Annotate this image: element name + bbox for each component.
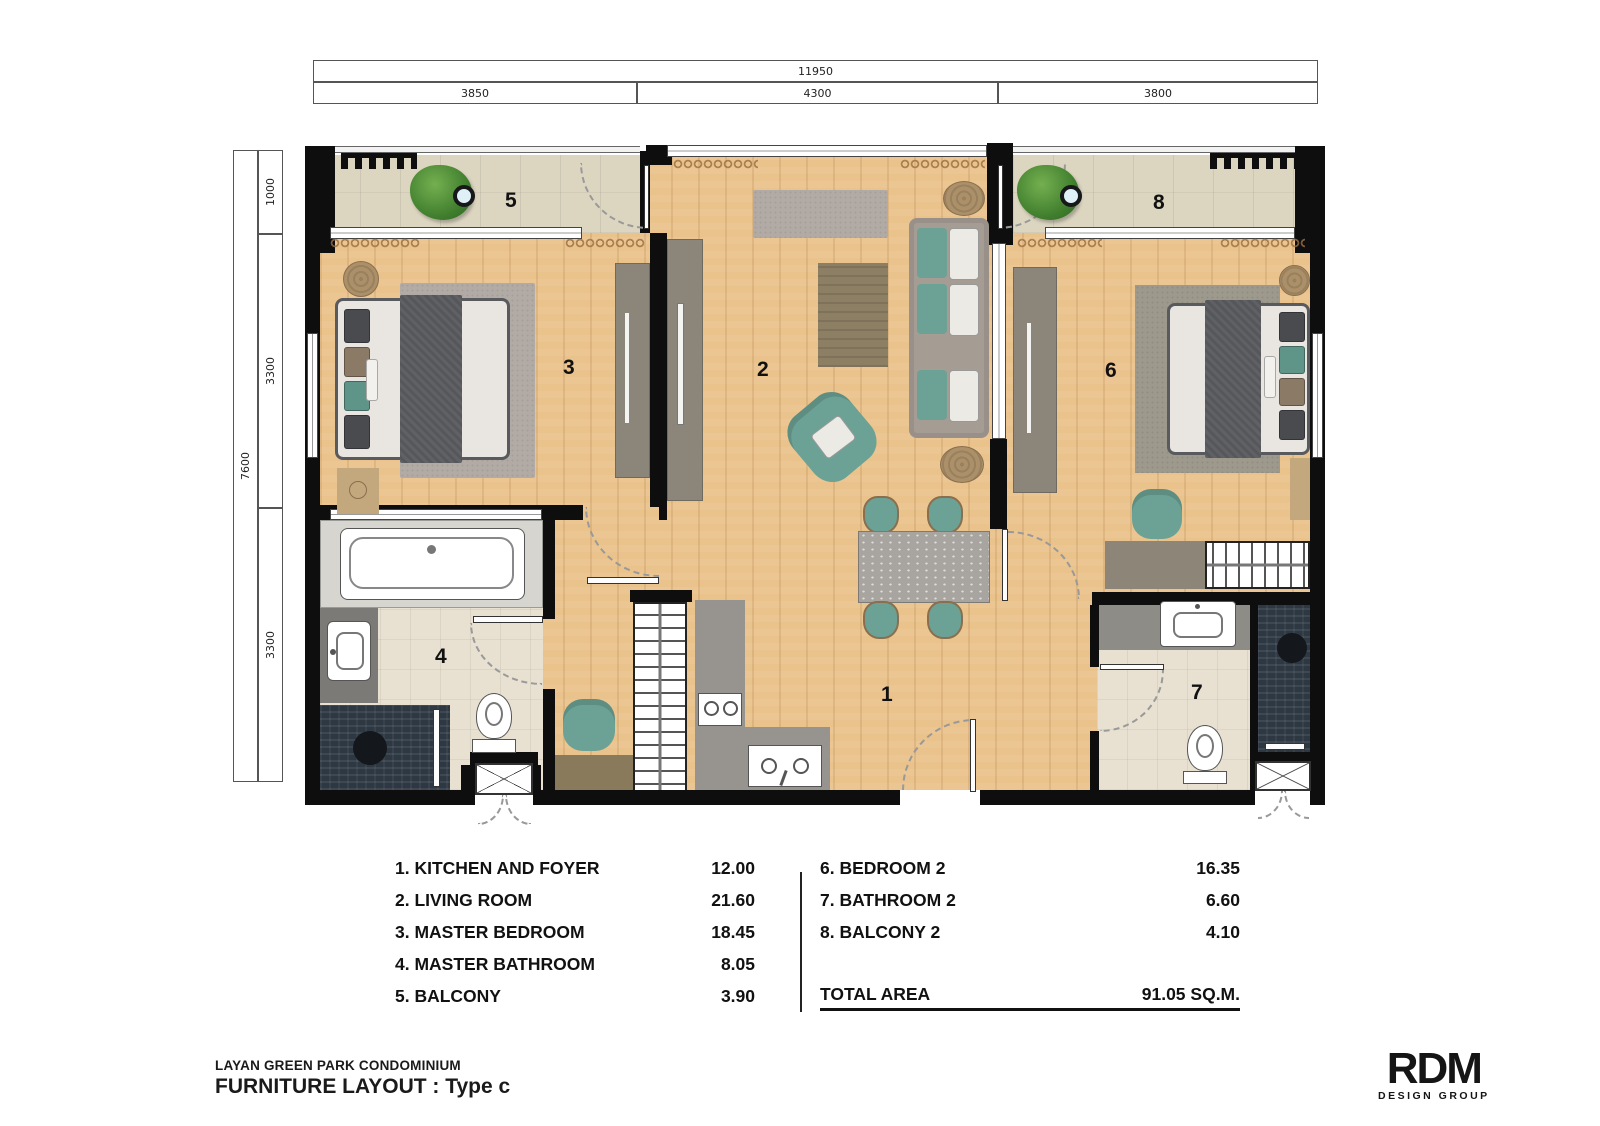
toilet-seat — [485, 702, 503, 726]
room-label-8: 8 — [1153, 191, 1165, 215]
logo-tagline: DESIGN GROUP — [1378, 1090, 1490, 1102]
knob — [349, 481, 367, 499]
toilet-tank — [1183, 771, 1227, 784]
sink-basin — [336, 632, 364, 670]
total-area-label: TOTAL AREA — [820, 984, 930, 1005]
coffee-table — [818, 263, 888, 367]
dim-value: 3300 — [264, 631, 277, 659]
legend-row: 1. KITCHEN AND FOYER 12.00 — [395, 858, 755, 879]
dining-chair — [927, 496, 963, 534]
dim-value: 7600 — [239, 452, 252, 480]
sink-bowl — [761, 758, 777, 774]
sofa-pillow — [949, 228, 979, 280]
chair — [563, 699, 615, 751]
pillow — [1264, 356, 1276, 398]
desk — [1105, 541, 1205, 589]
tv — [677, 303, 684, 425]
pillow — [1279, 312, 1305, 342]
room-label-7: 7 — [1191, 681, 1203, 705]
living-rug — [753, 190, 888, 238]
room-label-4: 4 — [435, 645, 447, 669]
wardrobe-handle — [625, 313, 629, 423]
dim-segment: 4300 — [637, 82, 998, 104]
toilet-bowl — [1187, 725, 1223, 771]
floor-plan: 5 8 3 2 6 4 1 7 — [305, 143, 1325, 833]
wall — [980, 790, 1255, 805]
project-name: LAYAN GREEN PARK CONDOMINIUM — [215, 1058, 510, 1073]
hatched-wall — [341, 153, 417, 169]
toilet-seat — [1196, 734, 1214, 758]
curtain — [673, 159, 758, 170]
room-label-1: 1 — [881, 683, 893, 707]
sofa-cushion — [917, 228, 947, 278]
toilet2 — [1181, 725, 1229, 787]
window — [667, 145, 987, 157]
bedroom2-door — [1002, 529, 1008, 601]
window — [307, 333, 318, 458]
kitchen-sink — [748, 745, 822, 787]
wall — [1090, 605, 1099, 667]
legend-row: 8. BALCONY 2 4.10 — [820, 922, 1240, 943]
sofa-cushion — [917, 370, 947, 420]
legend-room-area: 12.00 — [711, 858, 755, 879]
sofa-pillow — [949, 284, 979, 336]
toilet — [470, 693, 518, 757]
master-bathroom-door — [473, 616, 543, 623]
nightstand — [337, 468, 379, 514]
legend-room-name: 7. BATHROOM 2 — [820, 890, 956, 911]
service-door-swing — [1284, 791, 1309, 819]
curtain — [565, 238, 645, 249]
balcony-door — [644, 165, 649, 229]
legend-room-area: 16.35 — [1196, 858, 1240, 879]
legend-row: 6. BEDROOM 2 16.35 — [820, 858, 1240, 879]
armchair-pillow — [810, 414, 857, 460]
title-block: LAYAN GREEN PARK CONDOMINIUM FURNITURE L… — [215, 1058, 510, 1099]
master-bedroom-door — [587, 577, 659, 584]
wall — [630, 590, 692, 602]
side-table — [343, 261, 379, 297]
dining-chair — [863, 496, 899, 534]
legend-row: 3. MASTER BEDROOM 18.45 — [395, 922, 755, 943]
shower2-area — [1257, 605, 1310, 757]
pillow — [344, 415, 370, 449]
pillow — [1279, 378, 1305, 406]
bathroom-sink — [327, 621, 371, 681]
sofa — [909, 218, 989, 438]
balcony-railing — [335, 146, 640, 153]
dim-value: 3300 — [264, 357, 277, 385]
dim-segment: 3300 — [258, 508, 283, 782]
toilet-tank — [472, 739, 516, 753]
service-door-swing — [478, 795, 504, 825]
legend-room-name: 6. BEDROOM 2 — [820, 858, 945, 879]
wall — [1090, 731, 1099, 790]
legend-total-row: TOTAL AREA 91.05 SQ.M. — [820, 984, 1240, 1011]
dim-segment: 3300 — [258, 234, 283, 508]
entry-door — [970, 719, 976, 792]
sofa-cushion — [917, 284, 947, 334]
shower2-head — [1277, 633, 1307, 663]
legend-row: 4. MASTER BATHROOM 8.05 — [395, 954, 755, 975]
service-door-swing — [1258, 791, 1283, 819]
bathroom2-sink — [1160, 601, 1236, 647]
legend-row: 2. LIVING ROOM 21.60 — [395, 890, 755, 911]
pouf — [943, 181, 985, 216]
logo-text: RDM — [1378, 1048, 1490, 1090]
pillow — [366, 359, 378, 401]
pillow — [1279, 410, 1305, 440]
dim-segment: 3850 — [313, 82, 637, 104]
bed-blanket — [400, 295, 462, 463]
balcony2-railing — [1013, 146, 1305, 153]
curtain — [900, 159, 985, 170]
curtain — [330, 238, 420, 249]
legend-room-area: 4.10 — [1206, 922, 1240, 943]
drain — [427, 545, 436, 554]
hatched-wall — [1210, 153, 1295, 169]
wall — [543, 520, 555, 619]
legend-room-area: 3.90 — [721, 986, 755, 1007]
dining-table — [858, 531, 990, 603]
room-label-3: 3 — [563, 356, 575, 380]
wall — [990, 439, 1007, 529]
dim-total-width: 11950 — [313, 60, 1318, 82]
bathroom2-door — [1100, 664, 1164, 670]
hallway-wardrobe — [633, 602, 687, 792]
wall — [659, 505, 667, 520]
bathtub — [340, 528, 525, 600]
dim-value: 1000 — [264, 178, 277, 206]
legend-room-area: 8.05 — [721, 954, 755, 975]
wall — [461, 765, 475, 805]
shower-drain — [353, 731, 387, 765]
shower2-shelf — [1265, 743, 1305, 750]
wall — [533, 765, 541, 805]
shower-glass-panel — [433, 709, 440, 787]
open-closet — [1205, 541, 1310, 589]
legend-room-name: 8. BALCONY 2 — [820, 922, 940, 943]
curtain — [1017, 238, 1102, 249]
wall — [543, 689, 555, 790]
dim-value: 4300 — [804, 87, 832, 100]
total-area-value: 91.05 SQ.M. — [1142, 984, 1240, 1005]
dim-segment: 3800 — [998, 82, 1318, 104]
balcony2-door — [998, 165, 1003, 229]
legend-room-name: 5. BALCONY — [395, 986, 501, 1007]
dining-chair — [863, 601, 899, 639]
burner — [723, 701, 738, 716]
legend-room-area: 6.60 — [1206, 890, 1240, 911]
side-table — [1279, 265, 1310, 296]
faucet — [1195, 604, 1200, 609]
window — [1312, 333, 1323, 458]
ac-unit — [475, 763, 533, 795]
legend-room-name: 1. KITCHEN AND FOYER — [395, 858, 600, 879]
legend-room-name: 4. MASTER BATHROOM — [395, 954, 595, 975]
sliding-glass-door — [992, 243, 1006, 439]
faucet — [330, 649, 336, 655]
floor-mat — [545, 755, 635, 791]
dim-value: 3800 — [1144, 87, 1172, 100]
legend-row: 5. BALCONY 3.90 — [395, 986, 755, 1007]
wardrobe2-handle — [1027, 323, 1031, 433]
curtain — [1220, 238, 1305, 249]
toilet-bowl — [476, 693, 512, 739]
desk-chair — [1132, 489, 1182, 539]
floor-plan-sheet: 11950 3850 4300 3800 7600 1000 3300 3300 — [0, 0, 1600, 1126]
wardrobe — [615, 263, 650, 478]
faucet — [779, 770, 787, 786]
top-dimension-bar: 11950 3850 4300 3800 — [313, 60, 1318, 104]
ac-unit — [1255, 761, 1311, 791]
side-dimension-bar: 7600 1000 3300 3300 — [233, 150, 283, 782]
room-label-6: 6 — [1105, 359, 1117, 383]
dim-value: 11950 — [798, 65, 833, 78]
legend-room-name: 2. LIVING ROOM — [395, 890, 532, 911]
wardrobe2 — [1013, 267, 1057, 493]
sink-basin — [1173, 612, 1223, 638]
company-logo: RDM DESIGN GROUP — [1378, 1048, 1490, 1102]
wall — [1295, 146, 1325, 253]
wall — [1311, 790, 1325, 805]
cooktop — [698, 693, 742, 726]
dim-total-height: 7600 — [233, 150, 258, 782]
sink-bowl — [793, 758, 809, 774]
bed2-blanket — [1205, 300, 1261, 458]
layout-title: FURNITURE LAYOUT : Type c — [215, 1075, 510, 1099]
legend-row: 7. BATHROOM 2 6.60 — [820, 890, 1240, 911]
room-label-5: 5 — [505, 189, 517, 213]
pillow — [1279, 346, 1305, 374]
wall — [650, 233, 667, 507]
plant-dish — [453, 185, 475, 207]
tv-console — [667, 239, 703, 501]
pillow — [344, 309, 370, 343]
wall — [533, 790, 900, 805]
dim-segment: 1000 — [258, 150, 283, 234]
service-door-swing — [505, 795, 531, 825]
dim-value: 3850 — [461, 87, 489, 100]
legend-room-area: 18.45 — [711, 922, 755, 943]
legend-room-name: 3. MASTER BEDROOM — [395, 922, 585, 943]
dining-chair — [927, 601, 963, 639]
room-label-2: 2 — [757, 358, 769, 382]
nightstand2 — [1290, 458, 1310, 520]
legend-room-area: 21.60 — [711, 890, 755, 911]
legend-divider — [800, 872, 802, 1012]
sofa-pillow — [949, 370, 979, 422]
plant-dish — [1060, 185, 1082, 207]
pouf — [940, 446, 984, 483]
burner — [704, 701, 719, 716]
wall — [305, 790, 475, 805]
